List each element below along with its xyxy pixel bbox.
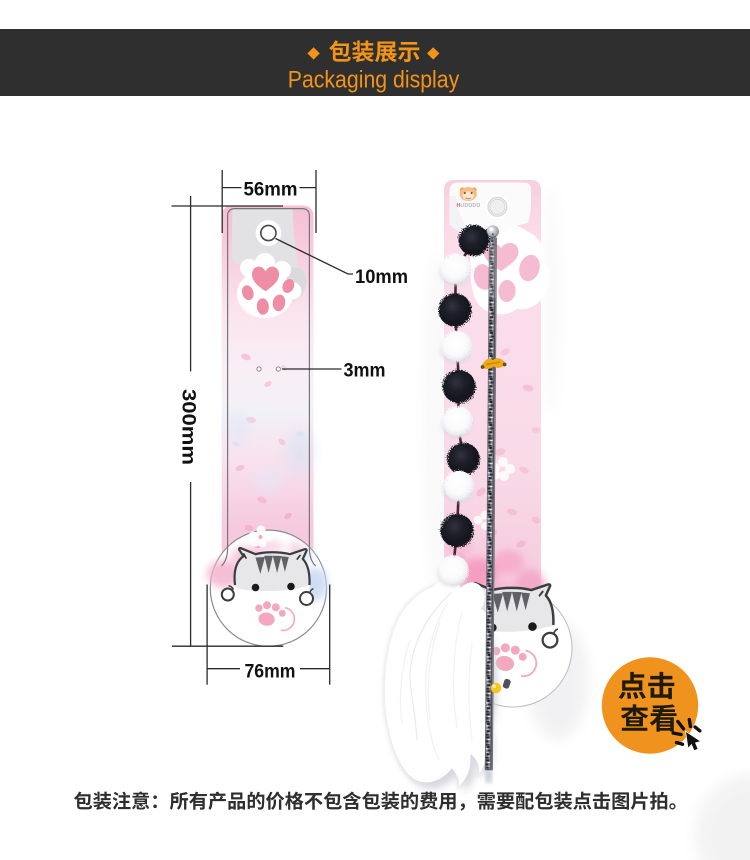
svg-text:56mm: 56mm — [244, 179, 298, 200]
svg-text:76mm: 76mm — [245, 661, 296, 682]
svg-text:10mm: 10mm — [355, 267, 408, 288]
svg-text:300mm: 300mm — [177, 389, 198, 465]
svg-text:3mm: 3mm — [344, 360, 386, 381]
svg-text:Packaging display: Packaging display — [288, 66, 460, 93]
svg-text:HUDODO: HUDODO — [457, 203, 481, 209]
